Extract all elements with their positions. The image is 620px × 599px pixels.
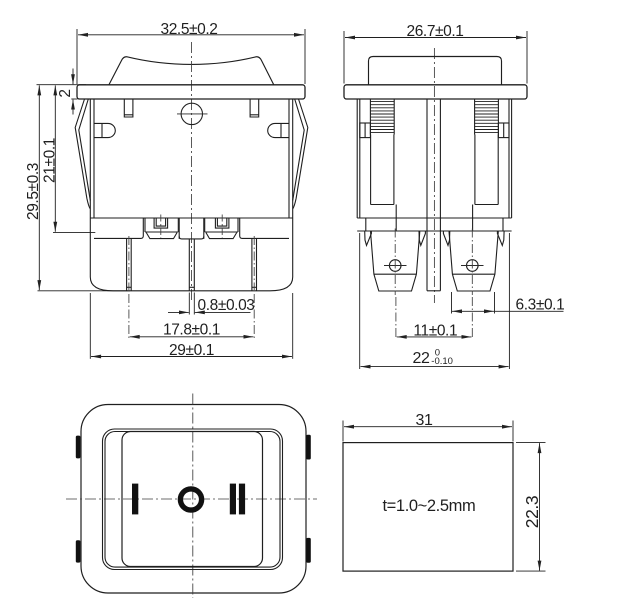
svg-text:29±0.1: 29±0.1 <box>169 342 214 359</box>
svg-text:32.5±0.2: 32.5±0.2 <box>160 21 217 38</box>
svg-text:2: 2 <box>57 89 74 97</box>
svg-text:17.8±0.1: 17.8±0.1 <box>163 321 220 338</box>
svg-text:29.5±0.3: 29.5±0.3 <box>25 163 42 220</box>
svg-text:31: 31 <box>416 412 433 429</box>
svg-text:11±0.1: 11±0.1 <box>413 322 457 339</box>
svg-text:22.3: 22.3 <box>522 496 542 528</box>
svg-text:-0.10: -0.10 <box>431 356 453 367</box>
svg-text:6.3±0.1: 6.3±0.1 <box>516 297 565 314</box>
svg-text:t=1.0~2.5mm: t=1.0~2.5mm <box>383 497 476 515</box>
svg-text:22: 22 <box>413 350 430 367</box>
svg-text:0.8±0.03: 0.8±0.03 <box>198 297 255 314</box>
svg-text:26.7±0.1: 26.7±0.1 <box>406 23 463 40</box>
svg-text:21±0.1: 21±0.1 <box>42 138 59 183</box>
